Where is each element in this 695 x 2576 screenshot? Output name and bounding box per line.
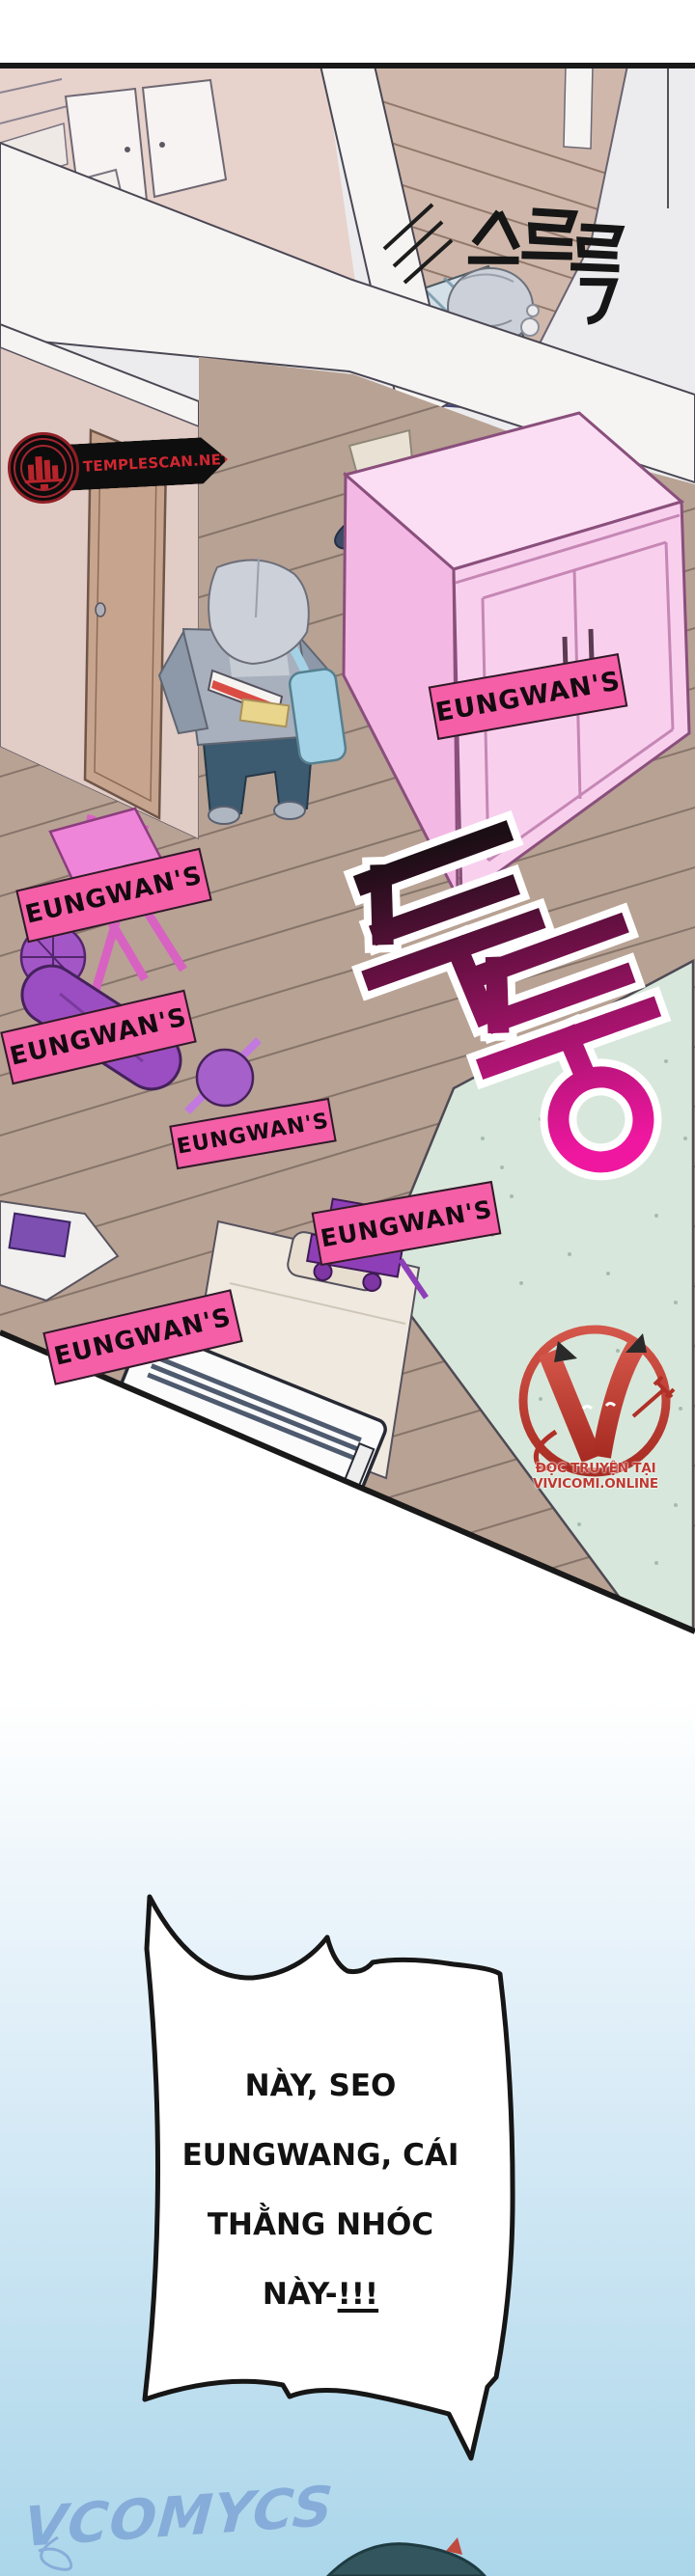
templescan-badge: TEMPLESCAN.NET <box>6 423 228 509</box>
vivicomi-watermark-text: ĐỌC TRUYỆN TẠI VIVICOMI.ONLINE <box>492 1461 695 1492</box>
head-peeking-bottom <box>328 2544 485 2576</box>
dialogue-line: EUNGWANG, CÁI <box>166 2121 475 2190</box>
templescan-text: TEMPLESCAN.NET <box>83 451 232 476</box>
dialogue-line: NÀY-!!! <box>166 2260 475 2329</box>
dialogue-emphasis: !!! <box>338 2277 378 2312</box>
templescan-banner: TEMPLESCAN.NET <box>67 436 229 491</box>
dialogue-line: NÀY, SEO <box>166 2051 475 2121</box>
panel-illustration <box>0 0 695 1640</box>
dialogue-line: THẰNG NHÓC <box>166 2190 475 2260</box>
webtoon-page: EUNGWAN'S EUNGWAN'S EUNGWAN'S EUNGWAN'S … <box>0 0 695 2576</box>
templescan-logo-icon <box>6 430 81 506</box>
dialogue-text: NÀY, SEO EUNGWANG, CÁI THẰNG NHÓC NÀY-!!… <box>166 2051 475 2329</box>
door-knob <box>96 603 105 617</box>
